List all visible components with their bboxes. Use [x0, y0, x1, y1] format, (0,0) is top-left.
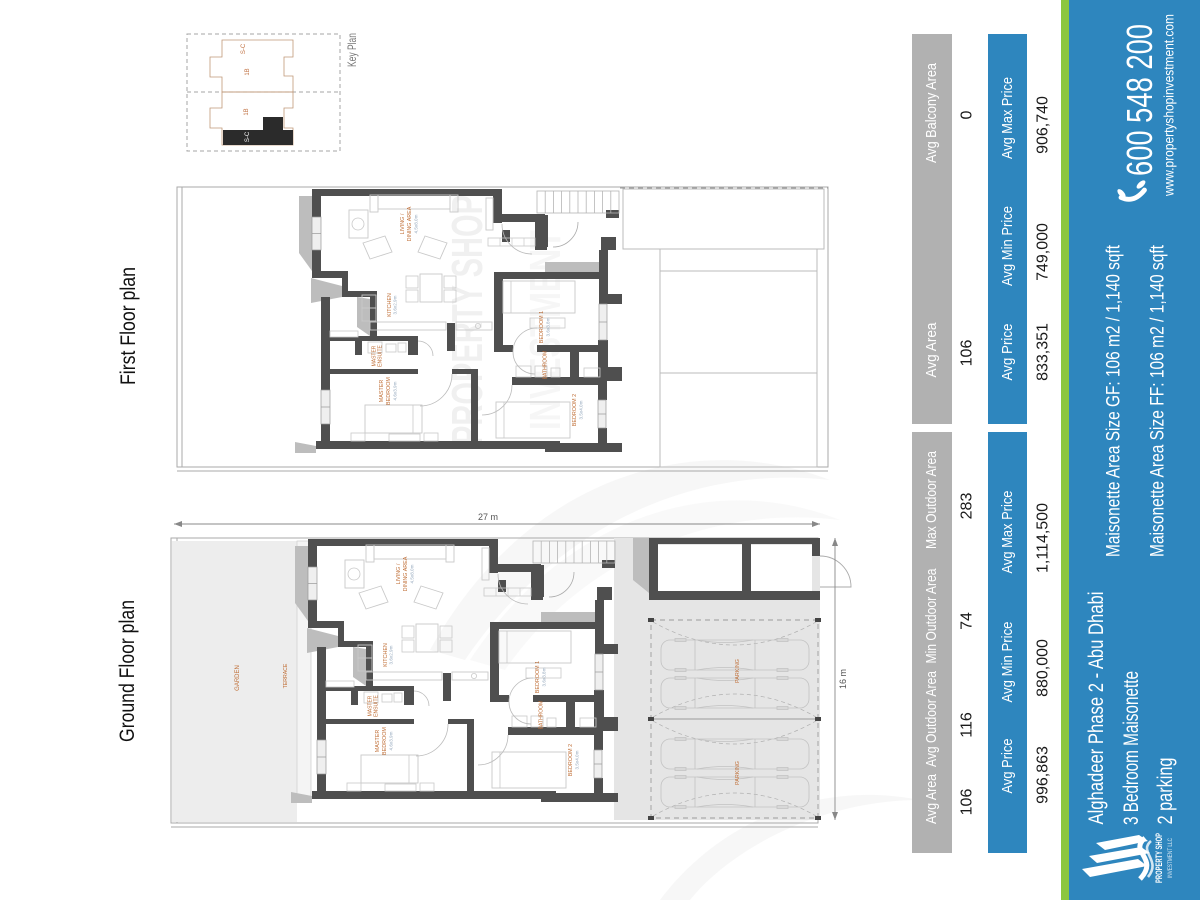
- svg-text:4.6x3.9m: 4.6x3.9m: [393, 381, 398, 400]
- svg-text:PARKING: PARKING: [735, 659, 741, 683]
- svg-text:833,351: 833,351: [1034, 323, 1051, 381]
- svg-text:Avg Max Price: Avg Max Price: [999, 77, 1016, 159]
- svg-text:3.6x2.9m: 3.6x2.9m: [393, 295, 398, 314]
- svg-text:16 m: 16 m: [838, 669, 848, 689]
- svg-text:Avg Outdoor Area: Avg Outdoor Area: [923, 670, 940, 767]
- svg-text:Avg Price: Avg Price: [999, 324, 1016, 381]
- svg-text:106: 106: [958, 789, 975, 816]
- svg-text:Maisonette Area Size GF: 106 m: Maisonette Area Size GF: 106 m2 / 1,140 …: [1104, 244, 1125, 557]
- svg-text:106: 106: [958, 340, 975, 367]
- svg-text:BATHROOM: BATHROOM: [543, 351, 549, 380]
- svg-text:3 Bedroom Maisonette: 3 Bedroom Maisonette: [1120, 671, 1143, 825]
- svg-text:600 548 200: 600 548 200: [1119, 24, 1160, 176]
- svg-text:BEDROOM: BEDROOM: [386, 377, 392, 405]
- svg-text:2 parking: 2 parking: [1154, 758, 1177, 825]
- svg-text:Key Plan: Key Plan: [345, 33, 359, 67]
- svg-text:ENSUITE: ENSUITE: [378, 345, 384, 367]
- svg-text:PROPERTY SHOP: PROPERTY SHOP: [443, 195, 492, 445]
- svg-text:27 m: 27 m: [478, 512, 498, 522]
- svg-text:BEDROOM 1: BEDROOM 1: [539, 311, 545, 343]
- svg-text:74: 74: [958, 612, 975, 630]
- svg-text:0: 0: [958, 110, 975, 119]
- svg-text:MASTER: MASTER: [379, 380, 385, 403]
- svg-text:Maisonette Area Size FF: 106: Maisonette Area Size FF: 106 m2 / 1,140 …: [1148, 244, 1169, 557]
- svg-text:749,000: 749,000: [1034, 223, 1051, 281]
- svg-text:Min Outdoor Area: Min Outdoor Area: [923, 568, 940, 664]
- svg-text:Avg Area: Avg Area: [923, 322, 940, 378]
- svg-text:PARKING: PARKING: [735, 761, 741, 785]
- svg-text:PROPERTY SHOP: PROPERTY SHOP: [1154, 833, 1164, 883]
- svg-text:906,740: 906,740: [1034, 96, 1051, 154]
- svg-text:996,863: 996,863: [1034, 746, 1051, 804]
- svg-text:Ground Floor plan: Ground Floor plan: [116, 600, 139, 742]
- svg-text:Avg Min Price: Avg Min Price: [999, 206, 1016, 286]
- svg-text:DINING AREA: DINING AREA: [407, 206, 413, 241]
- svg-text:www.propertyshopinvestment.com: www.propertyshopinvestment.com: [1162, 14, 1177, 197]
- svg-text:S-C: S-C: [245, 131, 251, 142]
- svg-text:1B: 1B: [244, 108, 250, 115]
- svg-text:4.5x8.0m: 4.5x8.0m: [414, 214, 419, 233]
- svg-text:Max Outdoor Area: Max Outdoor Area: [923, 450, 940, 549]
- svg-text:Avg Price: Avg Price: [999, 739, 1016, 794]
- svg-text:1,114,500: 1,114,500: [1034, 503, 1051, 573]
- svg-text:Avg Max Price: Avg Max Price: [999, 491, 1016, 574]
- svg-text:Alghadeer Phase 2 - Abu Dhabi: Alghadeer Phase 2 - Abu Dhabi: [1085, 592, 1108, 825]
- svg-text:283: 283: [958, 493, 975, 520]
- svg-text:Avg Min Price: Avg Min Price: [999, 622, 1016, 703]
- svg-text:S-C: S-C: [241, 43, 247, 54]
- svg-text:LIVING /: LIVING /: [400, 213, 406, 234]
- svg-text:Avg Balcony Area: Avg Balcony Area: [923, 62, 940, 163]
- svg-text:3.5x4.0m: 3.5x4.0m: [579, 400, 584, 419]
- svg-text:INVESTMENT LLC: INVESTMENT LLC: [1167, 838, 1174, 878]
- svg-text:3.6x3.8m: 3.6x3.8m: [546, 317, 551, 336]
- svg-text:116: 116: [958, 712, 975, 738]
- svg-text:GARDEN: GARDEN: [235, 665, 241, 691]
- svg-text:1B: 1B: [245, 68, 251, 75]
- svg-text:Avg Area: Avg Area: [923, 773, 940, 824]
- svg-text:BEDROOM 2: BEDROOM 2: [572, 394, 578, 426]
- svg-text:TERRACE: TERRACE: [283, 663, 289, 688]
- svg-text:880,000: 880,000: [1034, 639, 1051, 697]
- svg-text:First Floor plan: First Floor plan: [117, 267, 140, 385]
